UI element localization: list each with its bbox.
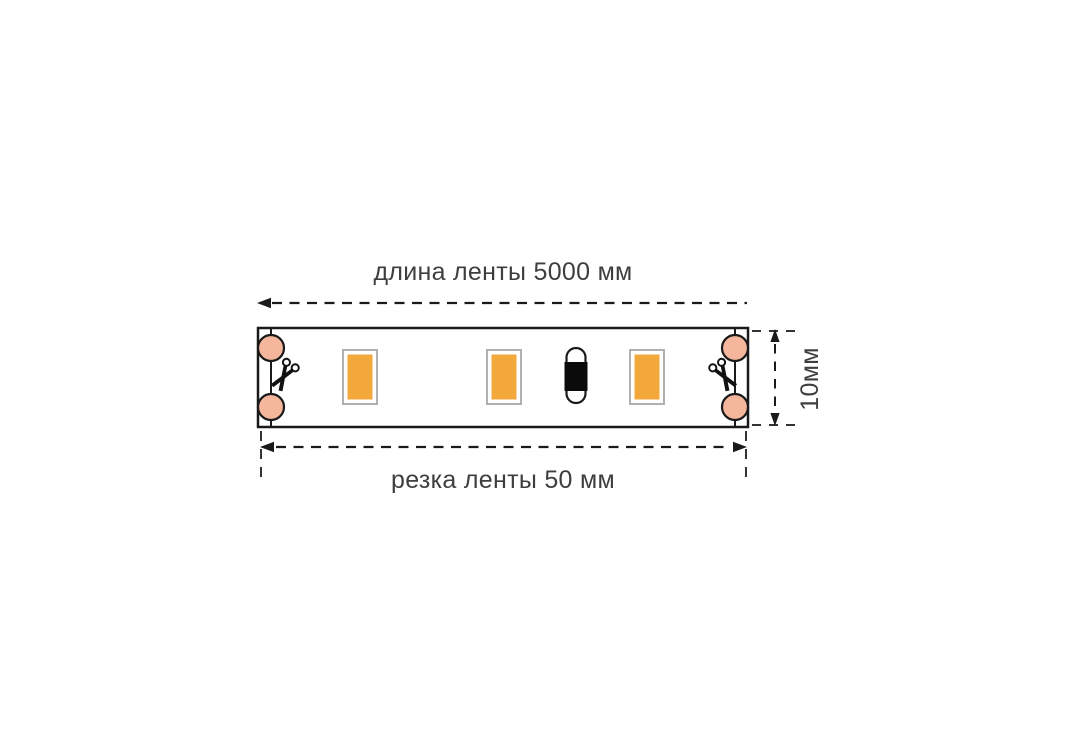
resistor bbox=[565, 348, 588, 403]
solder-pad bbox=[258, 335, 284, 361]
cut-dimension-label: резка ленты 50 мм bbox=[258, 466, 748, 495]
width-dimension-line bbox=[752, 329, 798, 426]
width-dimension-label: 10мм bbox=[796, 329, 824, 429]
solder-pad bbox=[258, 394, 284, 420]
led-strip-diagram bbox=[0, 0, 1080, 756]
arrowhead-left-icon bbox=[257, 298, 271, 309]
led-chip bbox=[343, 350, 377, 404]
arrowhead-right-icon bbox=[733, 442, 747, 453]
solder-pad bbox=[722, 335, 748, 361]
led-chip bbox=[630, 350, 664, 404]
resistor-body bbox=[565, 362, 588, 391]
led-chip-emitter bbox=[348, 355, 373, 400]
arrowhead-left-icon bbox=[260, 442, 274, 453]
length-dimension-label: длина ленты 5000 мм bbox=[258, 258, 748, 287]
led-chip-emitter bbox=[635, 355, 660, 400]
solder-pad bbox=[722, 394, 748, 420]
length-dimension-line bbox=[257, 298, 747, 309]
led-chip-emitter bbox=[492, 355, 517, 400]
led-strip-diagram-page: длина ленты 5000 мм резка ленты 50 мм 10… bbox=[0, 0, 1080, 756]
led-chip bbox=[487, 350, 521, 404]
